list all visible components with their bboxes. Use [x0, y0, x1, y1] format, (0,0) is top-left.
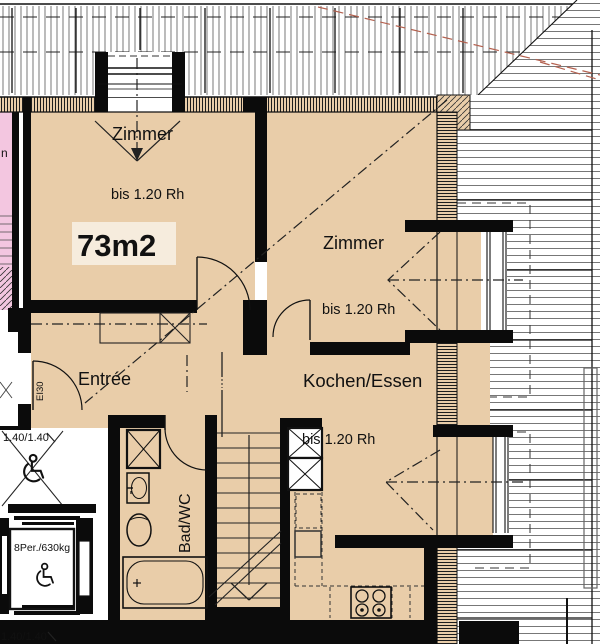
elevator: 8Per./630kg — [0, 504, 96, 615]
floor-plan: n — [0, 0, 600, 644]
counterweight — [79, 541, 90, 596]
bathroom-label: Bad/WC — [177, 493, 194, 553]
kitchen-height-note: bis 1.20 Rh — [302, 432, 375, 448]
room-right-height-note: bis 1.20 Rh — [322, 302, 395, 318]
elevator-capacity-label: 8Per./630kg — [14, 542, 70, 554]
bay-window-kitchen — [493, 437, 509, 533]
clearance-lower-label: 1.40/1.40 — [1, 631, 47, 643]
kitchen-label: Kochen/Essen — [303, 370, 422, 391]
top-dormer — [95, 52, 185, 112]
roof-top — [0, 0, 600, 95]
bay-window-zimmer — [481, 232, 507, 330]
clearance-upper-label: 1.40/1.40 — [3, 432, 49, 444]
room-top-height-note: bis 1.20 Rh — [111, 187, 184, 203]
room-top-label: Zimmer — [112, 124, 173, 144]
door-fire-rating-label: EI30 — [35, 381, 46, 401]
neighbor-landing-mark — [0, 382, 12, 398]
floor-plan-page: n — [0, 0, 600, 644]
exterior-wall-columns — [437, 112, 457, 644]
area-label: 73m2 — [77, 228, 156, 263]
neighbor-room-text: n — [1, 146, 8, 160]
bath-shaft-box — [127, 430, 160, 468]
room-right-label: Zimmer — [323, 233, 384, 253]
entree-label: Entrée — [78, 369, 131, 389]
